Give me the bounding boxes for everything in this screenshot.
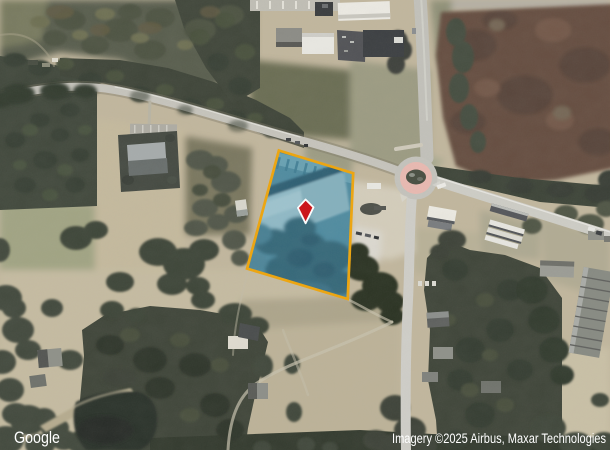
svg-text:Google: Google <box>14 428 60 447</box>
svg-text:Imagery ©2025 Airbus, Maxar Te: Imagery ©2025 Airbus, Maxar Technologies <box>392 431 606 446</box>
